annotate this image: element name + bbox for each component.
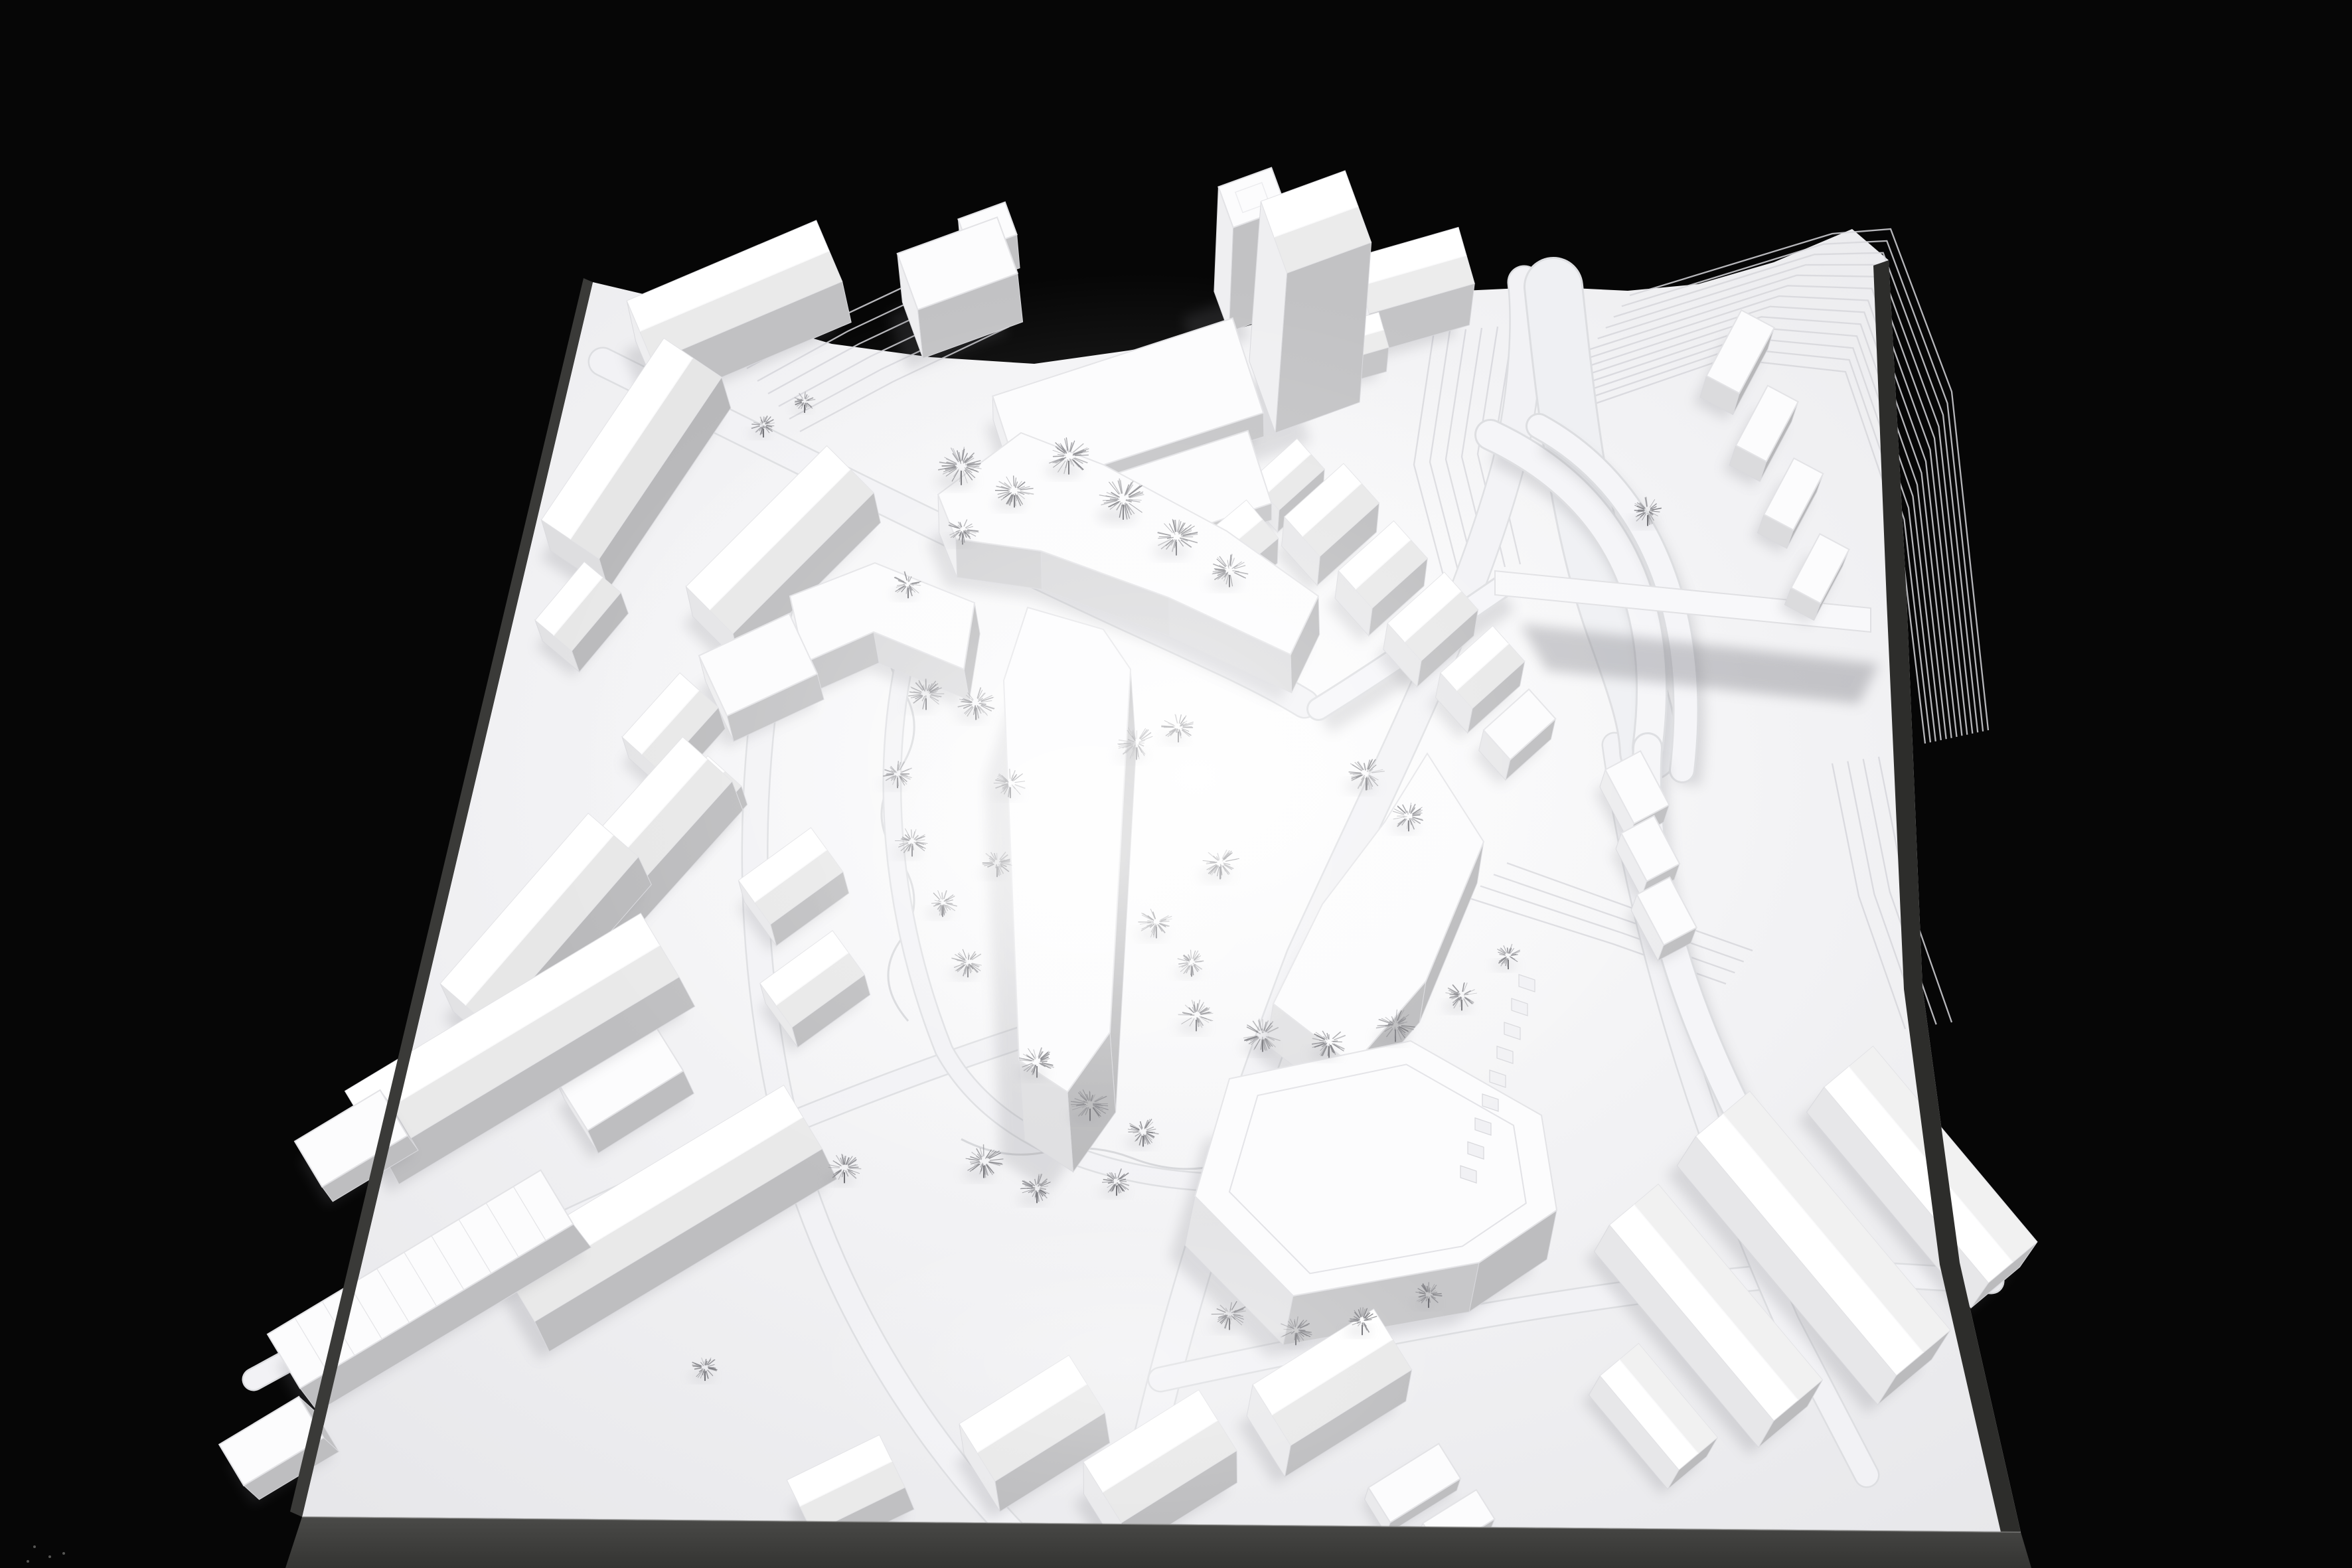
dust-speckle	[27, 1560, 29, 1563]
dust-speckle	[62, 1552, 65, 1555]
dust-speckle	[33, 1545, 36, 1548]
architectural-model-photograph	[0, 0, 2352, 1568]
model-photo-svg	[0, 0, 2352, 1568]
dust-speckle	[48, 1555, 51, 1558]
